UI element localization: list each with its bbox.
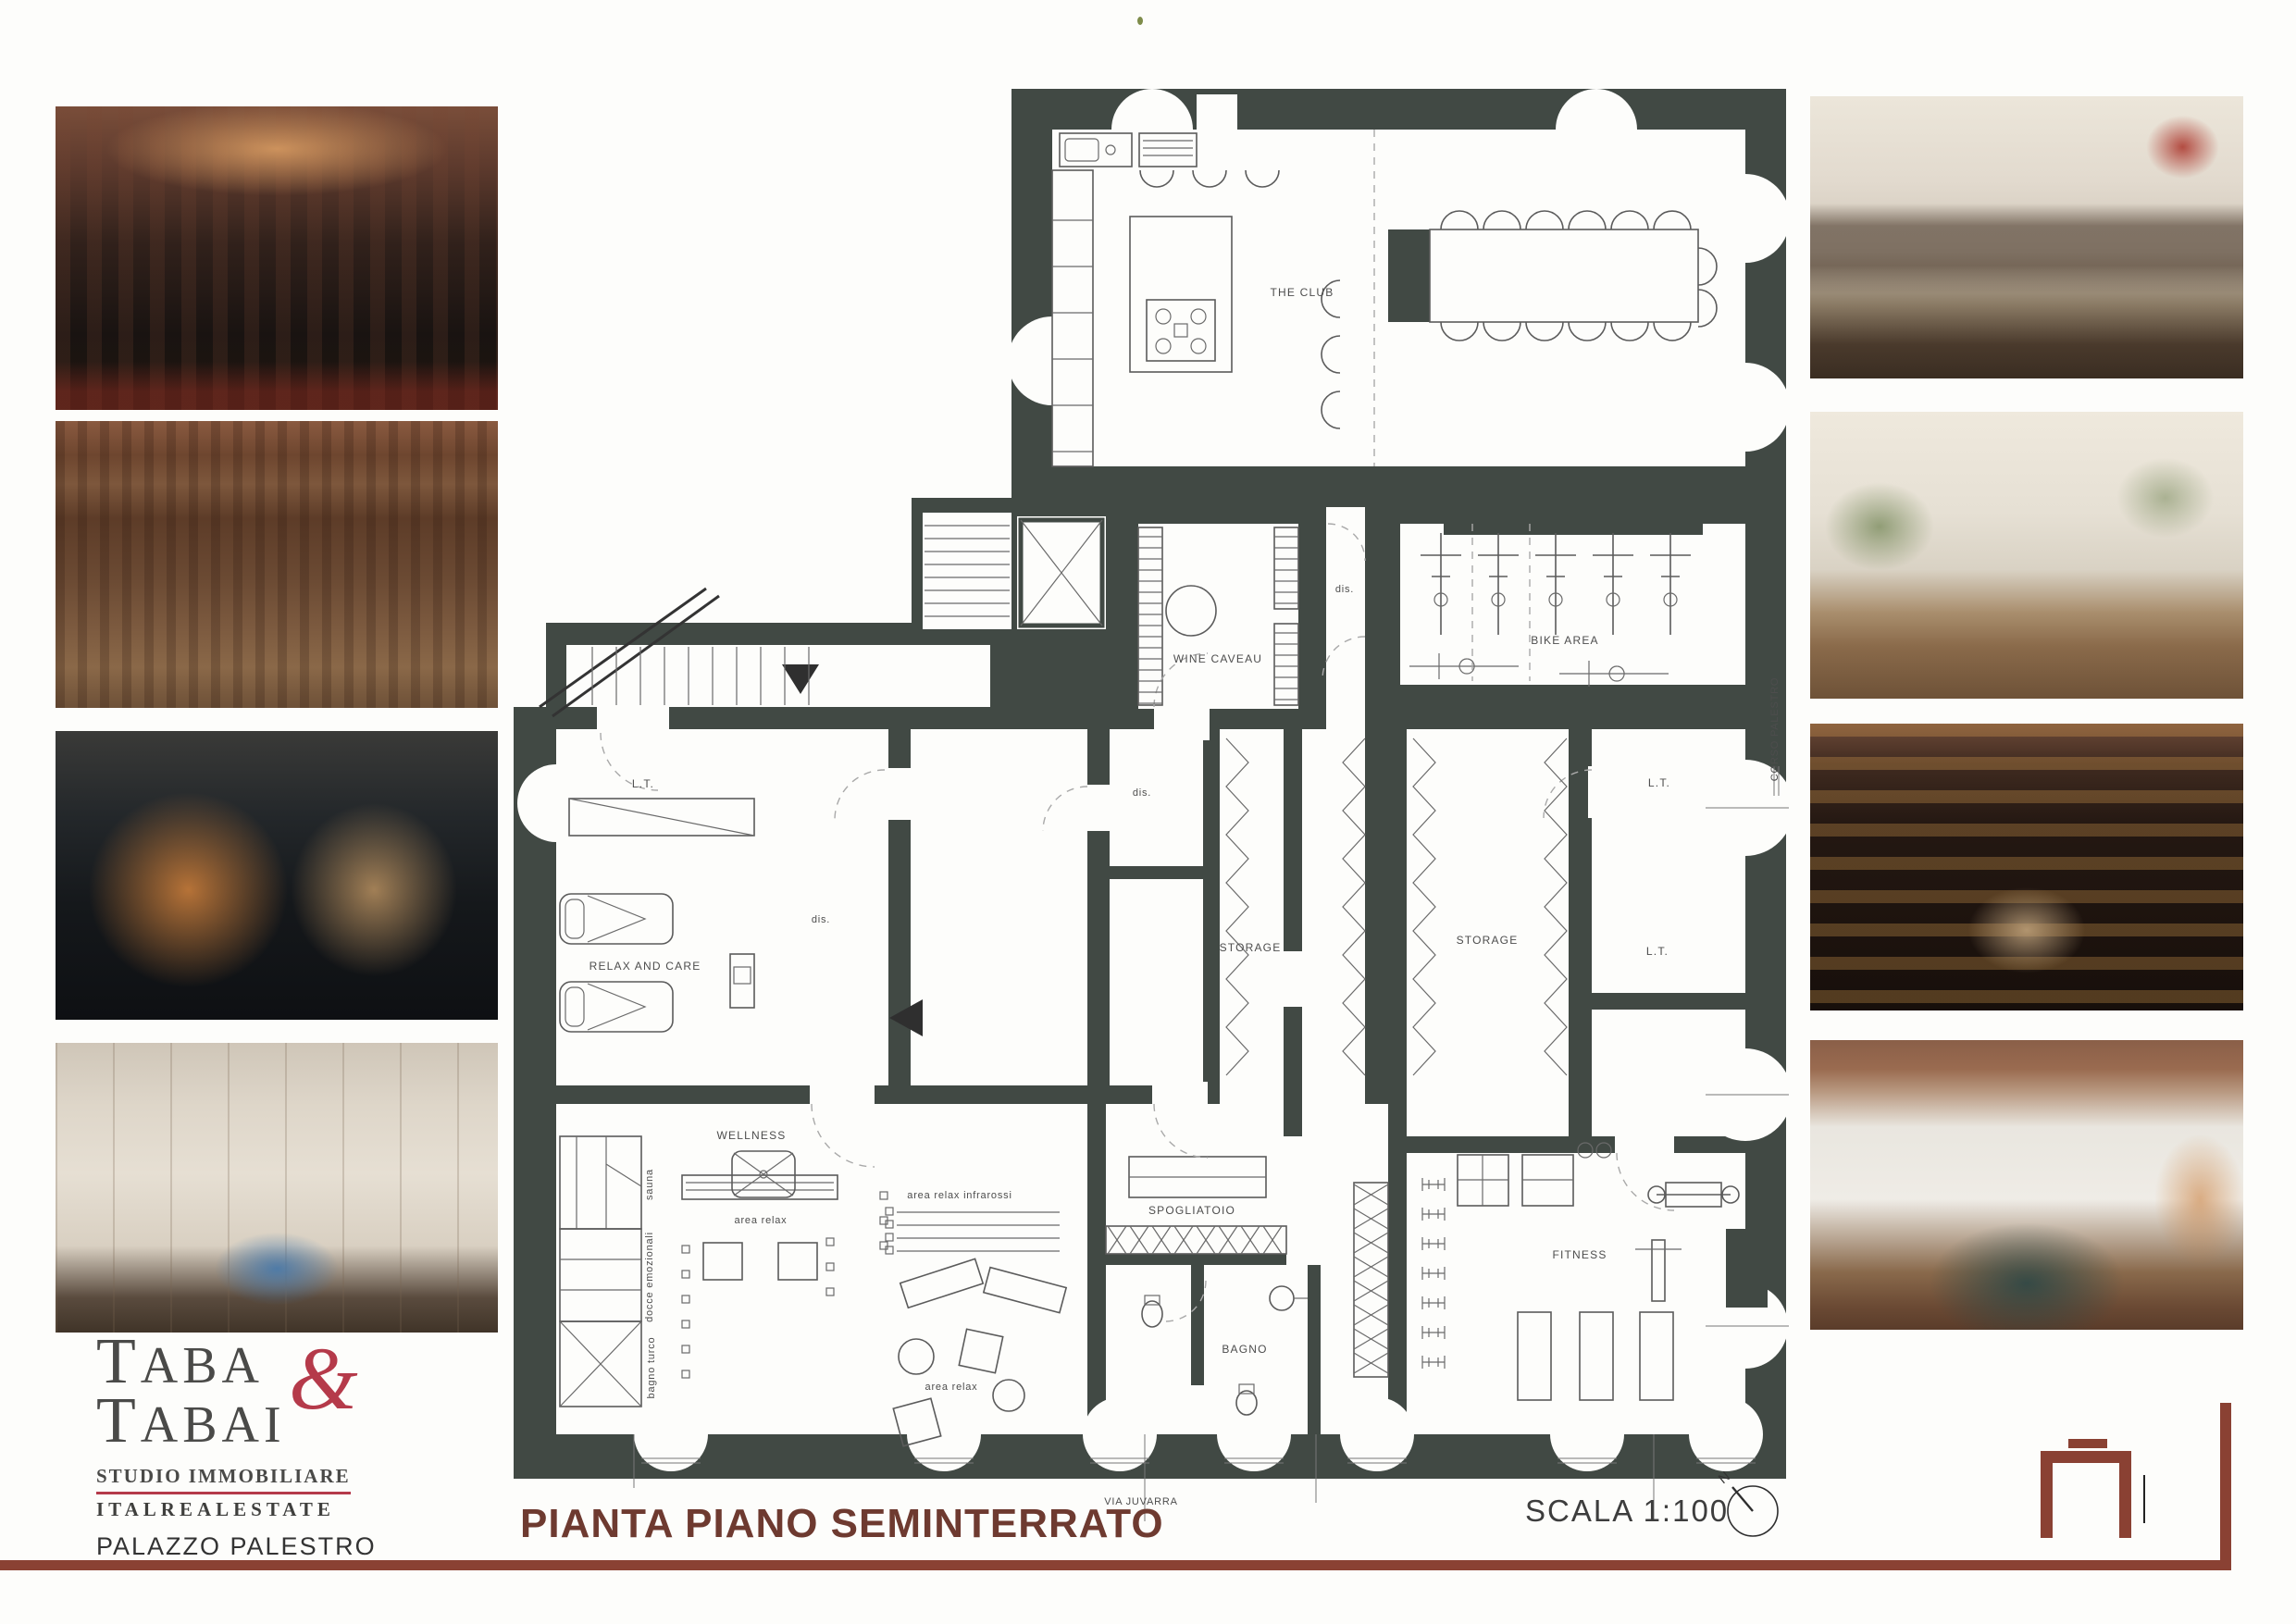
label-docce-emozionali: docce emozionali xyxy=(644,1232,655,1322)
bottom-rule xyxy=(0,1560,2231,1570)
corner-mark-glyph xyxy=(2041,1451,2053,1538)
room-label-bike-area: BIKE AREA xyxy=(1531,634,1599,647)
compass-north-letter: N xyxy=(1716,1469,1733,1487)
sheet-title: PIANTA PIANO SEMINTERRATO xyxy=(520,1501,1164,1547)
logo-tabai-text: ABAI xyxy=(141,1396,286,1454)
corner-mark xyxy=(2220,1403,2231,1570)
label-lt-right-lower: L.T. xyxy=(1646,945,1669,958)
label-dis-core: dis. xyxy=(812,914,830,925)
street-label-corso-palestro: CORSO PALESTRO xyxy=(1769,677,1781,781)
room-label-storage-1: STORAGE xyxy=(1220,941,1282,954)
label-area-relax-infrarossi: area relax infrarossi xyxy=(907,1190,1011,1201)
label-dis-corridor: dis. xyxy=(1335,584,1354,595)
room-label-spogliatoio: SPOGLIATOIO xyxy=(1148,1204,1235,1217)
room-label-relax-and-care: RELAX AND CARE xyxy=(590,960,701,973)
corner-mark-glyph xyxy=(2041,1451,2131,1463)
room-label-wellness: WELLNESS xyxy=(717,1129,787,1142)
room-label-wine-caveau: WINE CAVEAU xyxy=(1173,652,1262,665)
photo-wine-cellar xyxy=(1810,724,2243,1010)
logo-taba-text: ABA xyxy=(141,1337,264,1395)
room-label-the-club: THE CLUB xyxy=(1271,286,1334,299)
label-area-relax-2: area relax xyxy=(925,1382,978,1393)
room-label-storage-2: STORAGE xyxy=(1457,934,1519,947)
floor-plan: THE CLUBWINE CAVEAUBIKE AREAdis.L.T.dis.… xyxy=(504,81,1793,1525)
label-dis-wc: dis. xyxy=(1133,787,1151,799)
logo-subtitle-studio: STUDIO IMMOBILIARE xyxy=(96,1465,351,1494)
corner-mark-line xyxy=(2143,1475,2145,1523)
logo-ampersand: & xyxy=(289,1334,358,1423)
label-lt-entry: L.T. xyxy=(632,777,654,790)
label-area-relax-1: area relax xyxy=(735,1215,788,1226)
scale-label: SCALA 1:100 xyxy=(1525,1494,1729,1529)
photo-locker-room xyxy=(56,1043,498,1333)
logo-project-name: PALAZZO PALESTRO xyxy=(96,1532,402,1561)
agency-logo: TABA TABAI & STUDIO IMMOBILIARE ITALREAL… xyxy=(96,1333,402,1561)
logo-subtitle-ital: ITALREALESTATE xyxy=(96,1498,402,1521)
photo-bike-storage xyxy=(1810,1040,2243,1330)
north-compass-icon: N xyxy=(1705,1469,1793,1547)
photo-spa-sauna xyxy=(56,731,498,1020)
corner-mark-glyph xyxy=(2119,1451,2131,1538)
photo-dining-room-2 xyxy=(1810,412,2243,699)
photo-gym-interior xyxy=(56,106,498,410)
label-sauna: sauna xyxy=(644,1169,655,1200)
room-label-fitness: FITNESS xyxy=(1552,1248,1607,1261)
photo-bar-lounge xyxy=(56,421,498,708)
room-label-bagno: BAGNO xyxy=(1222,1343,1267,1356)
photo-dining-room xyxy=(1810,96,2243,378)
label-bagno-turco: bagno turco xyxy=(646,1337,657,1399)
presentation-sheet: THE CLUBWINE CAVEAUBIKE AREAdis.L.T.dis.… xyxy=(0,0,2296,1624)
scan-speck xyxy=(1137,17,1143,25)
label-lt-right-upper: L.T. xyxy=(1648,776,1670,789)
corner-mark-glyph xyxy=(2068,1439,2107,1448)
